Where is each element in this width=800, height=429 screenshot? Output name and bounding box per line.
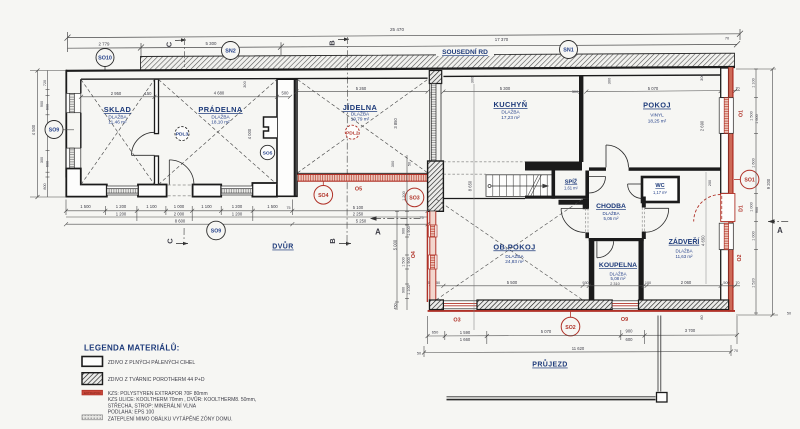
svg-text:650: 650	[432, 329, 439, 334]
svg-text:1 520: 1 520	[752, 278, 756, 288]
svg-text:25 470: 25 470	[390, 27, 404, 32]
svg-text:B: B	[328, 238, 337, 244]
svg-text:ZATEPLENÍ MIMO OBÁLKU VYTÁPĚNÉ: ZATEPLENÍ MIMO OBÁLKU VYTÁPĚNÉ ZÓNY DOMU…	[108, 414, 233, 422]
svg-text:8 600: 8 600	[175, 219, 186, 224]
svg-text:5 070: 5 070	[541, 329, 552, 334]
svg-text:C: C	[165, 41, 174, 47]
svg-text:5,08 m²: 5,08 m²	[611, 276, 626, 281]
svg-text:2 779: 2 779	[99, 42, 111, 47]
svg-text:8 650: 8 650	[468, 180, 473, 191]
svg-text:KOUPELNA: KOUPELNA	[599, 262, 637, 269]
svg-text:1 500: 1 500	[750, 111, 754, 121]
svg-text:PDL3: PDL3	[176, 132, 189, 138]
svg-text:SO9: SO9	[49, 128, 59, 134]
svg-text:ZDIVO Z PLNÝCH PÁLENÝCH CIHEL: ZDIVO Z PLNÝCH PÁLENÝCH CIHEL	[108, 359, 196, 366]
svg-text:18,25 m²: 18,25 m²	[648, 118, 667, 123]
svg-text:1 100: 1 100	[146, 204, 157, 209]
svg-text:1 100: 1 100	[201, 204, 212, 209]
svg-text:900: 900	[402, 228, 406, 234]
svg-text:2 950: 2 950	[111, 91, 122, 96]
svg-text:1 590: 1 590	[460, 330, 471, 335]
svg-text:11,46 m²: 11,46 m²	[108, 120, 127, 125]
svg-text:100: 100	[645, 281, 651, 285]
svg-text:O9: O9	[621, 317, 628, 323]
svg-text:DLAŽBA: DLAŽBA	[505, 252, 524, 259]
svg-text:O3: O3	[453, 318, 460, 324]
svg-text:1 900: 1 900	[407, 257, 411, 267]
svg-text:DLAŽBA: DLAŽBA	[108, 112, 127, 119]
svg-text:KUCHYŇ: KUCHYŇ	[493, 100, 527, 109]
svg-text:1 200: 1 200	[402, 191, 406, 201]
svg-text:SO4: SO4	[318, 193, 328, 199]
svg-text:900: 900	[402, 287, 406, 293]
svg-text:4 650: 4 650	[701, 235, 706, 246]
svg-text:2 060: 2 060	[681, 280, 692, 285]
svg-text:SN2: SN2	[225, 49, 236, 55]
svg-text:SN1: SN1	[563, 48, 574, 54]
svg-text:5 260: 5 260	[356, 86, 367, 91]
svg-text:KZS: POLYSTYREN EXTRAPOR 70F 8: KZS: POLYSTYREN EXTRAPOR 70F 80mm	[108, 391, 208, 397]
svg-text:C: C	[166, 238, 175, 244]
svg-text:SO5: SO5	[263, 151, 273, 157]
svg-text:50: 50	[408, 162, 412, 166]
svg-text:19,79 m²: 19,79 m²	[351, 117, 370, 122]
svg-text:11 620: 11 620	[572, 346, 585, 351]
svg-text:O4: O4	[411, 251, 417, 258]
svg-text:WC: WC	[655, 183, 664, 189]
svg-text:O5: O5	[355, 187, 362, 193]
svg-text:1 900: 1 900	[407, 226, 411, 236]
svg-text:1 500: 1 500	[267, 204, 278, 209]
svg-text:5 300: 5 300	[206, 41, 218, 46]
svg-text:ZDIVO Z TVÁRNIC POROTHERM 44 P: ZDIVO Z TVÁRNIC POROTHERM 44 P+D	[108, 376, 205, 383]
svg-text:17,23 m²: 17,23 m²	[501, 115, 520, 120]
svg-text:300: 300	[40, 157, 44, 163]
svg-text:900: 900	[40, 101, 44, 107]
svg-text:4 000: 4 000	[247, 128, 252, 139]
svg-text:17 370: 17 370	[495, 37, 509, 42]
svg-text:DLAŽBA: DLAŽBA	[351, 110, 370, 117]
svg-text:SOUSEDNÍ RD: SOUSEDNÍ RD	[442, 47, 488, 56]
svg-text:1 500: 1 500	[402, 257, 406, 267]
svg-text:2 690: 2 690	[700, 120, 705, 131]
svg-text:A: A	[375, 228, 381, 237]
svg-text:SO9: SO9	[211, 229, 221, 235]
svg-text:1 200: 1 200	[232, 204, 243, 209]
svg-text:500: 500	[282, 91, 290, 96]
svg-text:1 100: 1 100	[407, 285, 411, 295]
svg-text:OB.POKOJ: OB.POKOJ	[493, 242, 535, 251]
svg-text:900: 900	[626, 329, 634, 334]
svg-text:SKLAD: SKLAD	[104, 105, 132, 114]
svg-text:150: 150	[145, 91, 153, 96]
svg-text:SO2: SO2	[565, 325, 575, 331]
svg-text:600: 600	[46, 161, 50, 167]
svg-text:4 680: 4 680	[214, 91, 225, 96]
svg-text:5 250: 5 250	[356, 219, 367, 224]
svg-text:PDL2: PDL2	[346, 130, 359, 136]
svg-text:1 000: 1 000	[752, 231, 756, 241]
svg-text:300: 300	[607, 77, 612, 84]
svg-text:5 100: 5 100	[353, 205, 364, 210]
svg-text:PODLAHA: EPS 100: PODLAHA: EPS 100	[108, 410, 155, 416]
svg-text:O2: O2	[737, 254, 743, 261]
svg-text:2 000: 2 000	[174, 211, 185, 216]
svg-text:1 000: 1 000	[174, 204, 185, 209]
svg-text:5 500: 5 500	[507, 280, 518, 285]
svg-text:3 850: 3 850	[393, 117, 398, 128]
svg-text:1,61 m²: 1,61 m²	[564, 186, 579, 191]
svg-text:200: 200	[708, 180, 712, 186]
svg-text:50: 50	[417, 352, 421, 356]
svg-text:LEGENDA MATERIÁLŮ:: LEGENDA MATERIÁLŮ:	[84, 343, 180, 353]
svg-text:3 700: 3 700	[685, 328, 696, 333]
svg-text:600: 600	[626, 337, 634, 342]
svg-text:930: 930	[582, 281, 588, 285]
svg-text:O1: O1	[739, 110, 745, 117]
svg-text:DLAŽBA: DLAŽBA	[675, 249, 692, 254]
svg-text:1 200: 1 200	[116, 204, 127, 209]
svg-text:1 600: 1 600	[755, 114, 759, 124]
svg-text:DLAŽBA: DLAŽBA	[501, 107, 520, 114]
svg-text:1 200: 1 200	[116, 211, 127, 216]
svg-text:1 100: 1 100	[752, 78, 756, 88]
svg-text:5 000: 5 000	[393, 239, 398, 250]
svg-text:ZÁDVEŘÍ: ZÁDVEŘÍ	[669, 237, 701, 246]
svg-text:500: 500	[723, 281, 729, 285]
svg-text:2 310: 2 310	[610, 282, 620, 286]
svg-text:300: 300	[572, 89, 579, 94]
svg-text:5 300: 5 300	[500, 86, 511, 91]
svg-text:VINYL: VINYL	[650, 112, 664, 117]
svg-text:1 200: 1 200	[232, 211, 243, 216]
svg-text:18,10 m²: 18,10 m²	[211, 120, 230, 125]
svg-text:11,63 m²: 11,63 m²	[675, 254, 693, 259]
svg-text:1 500: 1 500	[80, 204, 91, 209]
svg-text:SO10: SO10	[98, 56, 112, 62]
svg-text:450: 450	[394, 303, 398, 309]
svg-text:1 600: 1 600	[752, 158, 756, 168]
svg-text:DLAŽBA: DLAŽBA	[211, 112, 230, 119]
svg-text:SO3: SO3	[409, 196, 419, 202]
svg-text:9 200: 9 200	[766, 178, 771, 189]
svg-text:70: 70	[736, 281, 740, 285]
svg-text:A: A	[777, 226, 783, 235]
svg-text:B: B	[328, 40, 337, 46]
svg-text:75: 75	[419, 216, 423, 220]
svg-text:1 660: 1 660	[460, 337, 471, 342]
svg-text:CHODBA: CHODBA	[596, 203, 626, 210]
svg-text:4 500: 4 500	[31, 124, 36, 135]
svg-text:900: 900	[755, 207, 759, 213]
svg-text:5 070: 5 070	[648, 86, 659, 91]
svg-text:300: 300	[242, 80, 247, 87]
svg-text:70: 70	[735, 86, 739, 90]
svg-text:300: 300	[699, 74, 704, 81]
svg-text:SO1: SO1	[744, 178, 754, 184]
svg-text:70: 70	[734, 349, 738, 353]
svg-text:300: 300	[390, 160, 395, 167]
svg-text:600: 600	[46, 104, 50, 110]
svg-text:2 250: 2 250	[353, 211, 364, 216]
svg-text:PRÁDELNA: PRÁDELNA	[198, 105, 243, 114]
svg-text:24,83 m²: 24,83 m²	[505, 259, 524, 264]
svg-text:300: 300	[470, 76, 475, 83]
svg-text:80: 80	[700, 315, 704, 319]
svg-text:KZS ULICE: KOOLTHERM 70mm , DV: KZS ULICE: KOOLTHERM 70mm , DVŮR: KOOLTH…	[108, 396, 256, 403]
svg-text:SPÍŽ: SPÍŽ	[565, 177, 578, 185]
svg-text:1,17 m²: 1,17 m²	[653, 190, 668, 195]
svg-text:POKOJ: POKOJ	[643, 101, 671, 110]
svg-text:75: 75	[287, 206, 291, 210]
svg-text:800: 800	[43, 183, 47, 189]
svg-text:1 000: 1 000	[750, 202, 754, 212]
svg-text:D1: D1	[739, 205, 745, 212]
svg-text:720: 720	[43, 80, 47, 86]
svg-text:STŘECHA, STROP: MINERÁLNÍ VLNA: STŘECHA, STROP: MINERÁLNÍ VLNA	[108, 402, 197, 410]
svg-text:EXTRAPOR: EXTRAPOR	[84, 391, 101, 395]
svg-text:5,06 m²: 5,06 m²	[604, 216, 619, 221]
svg-text:50: 50	[787, 312, 791, 316]
